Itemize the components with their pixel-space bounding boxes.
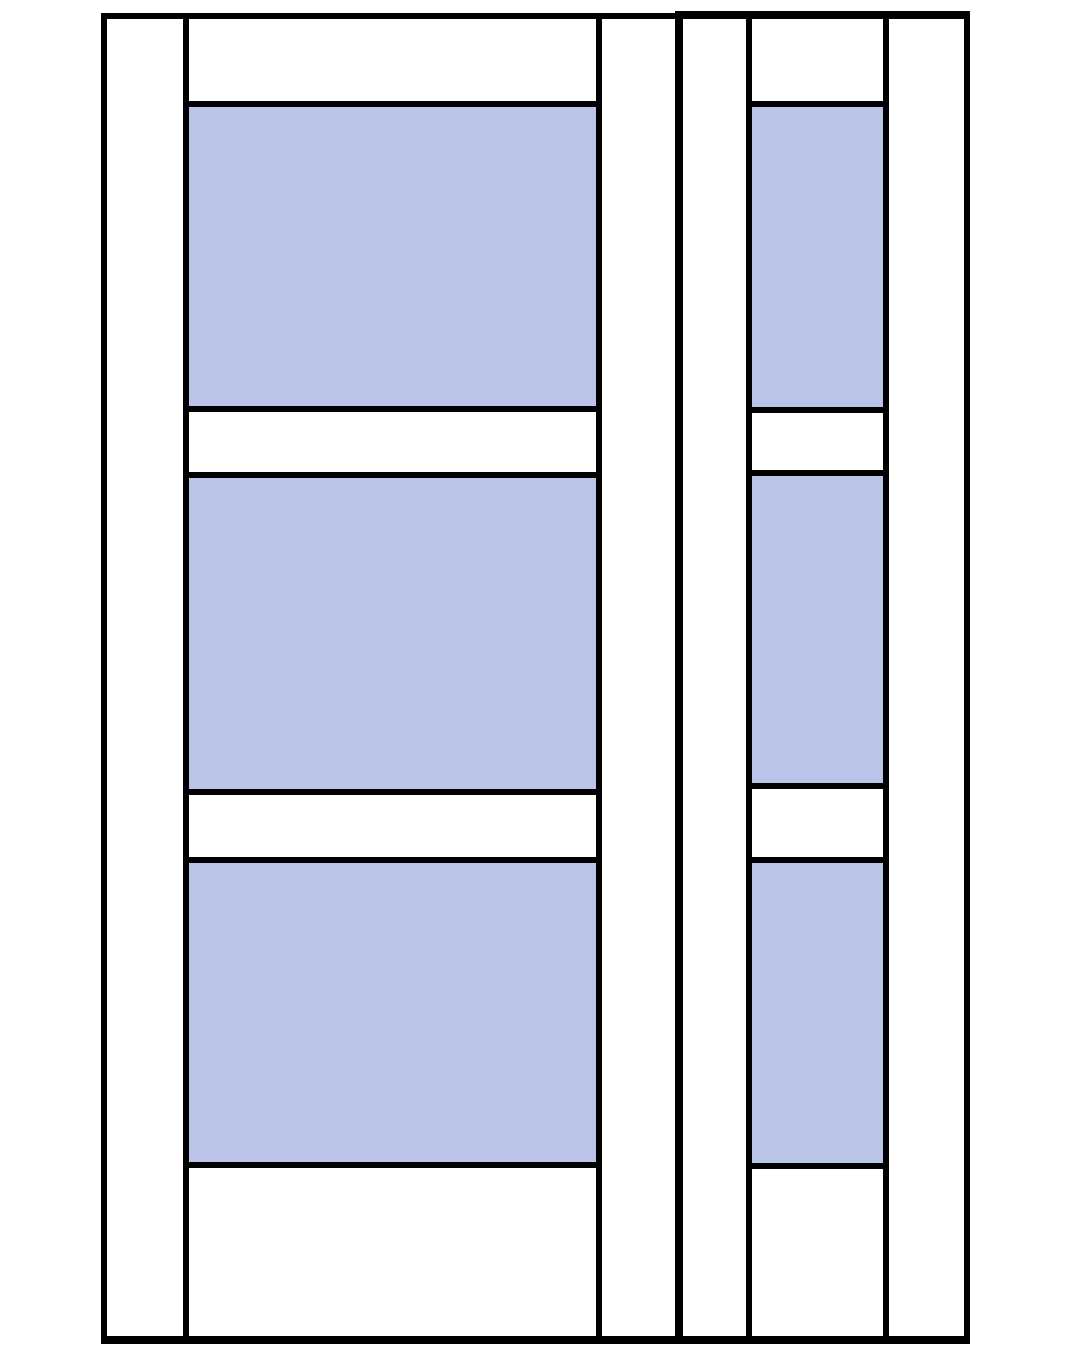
sidelite-rail-line-panel2-bottom (746, 783, 889, 789)
door-glass-panel-1 (189, 107, 596, 406)
sidelite-glass-panel-2 (752, 476, 883, 783)
door-glass-panel-3 (189, 863, 596, 1162)
door-rail-line-panel2-bottom (183, 789, 602, 795)
sidelite-rail-line-panel3-bottom (746, 1163, 889, 1169)
door-stile-line-right (596, 19, 602, 1336)
sidelite-glass-panel-1 (752, 107, 883, 407)
sidelite-glass-panel-3 (752, 863, 883, 1163)
door-rail-line-panel3-bottom (183, 1162, 602, 1168)
door-glass-panel-2 (189, 478, 596, 789)
door-rail-line-panel1-bottom (183, 406, 602, 412)
door-diagram (0, 0, 1080, 1350)
sidelite-stile-line-right (883, 19, 889, 1336)
sidelite-rail-line-panel1-bottom (746, 407, 889, 413)
